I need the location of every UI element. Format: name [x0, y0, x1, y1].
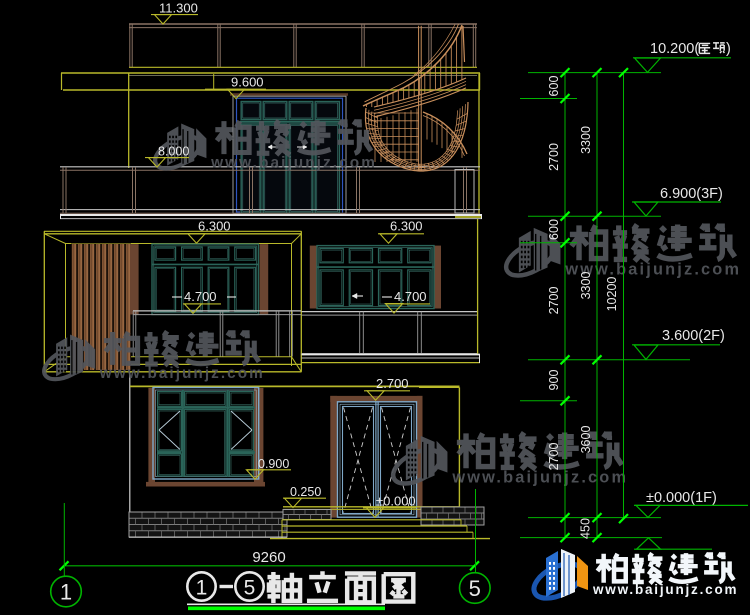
svg-text:5: 5 [244, 577, 256, 600]
svg-text:1: 1 [196, 577, 208, 600]
svg-text:600: 600 [547, 76, 561, 97]
svg-text:3300: 3300 [579, 272, 593, 300]
svg-text:9.600: 9.600 [231, 75, 264, 90]
svg-text:2700: 2700 [547, 443, 561, 471]
svg-text:±0.000: ±0.000 [376, 494, 416, 509]
svg-text:0.900: 0.900 [258, 457, 289, 471]
svg-text:www.baijunjz.com: www.baijunjz.com [451, 468, 628, 486]
svg-text:0.250: 0.250 [290, 485, 321, 499]
svg-text:6.300: 6.300 [198, 219, 231, 234]
svg-text:www.baijunjz.com: www.baijunjz.com [99, 365, 265, 382]
svg-text:6.900(3F): 6.900(3F) [660, 186, 723, 202]
svg-text:5: 5 [469, 576, 481, 601]
svg-text:8.000: 8.000 [158, 145, 189, 159]
svg-text:600: 600 [547, 219, 561, 240]
svg-text:4.700: 4.700 [184, 289, 217, 304]
svg-text:www.baijunjz.com: www.baijunjz.com [210, 154, 377, 171]
svg-text:www.baijunjz.com: www.baijunjz.com [592, 582, 738, 597]
svg-text:3600: 3600 [579, 426, 593, 454]
svg-text:900: 900 [547, 370, 561, 391]
svg-text:2.700: 2.700 [376, 376, 409, 391]
svg-text:11.300: 11.300 [159, 1, 198, 16]
svg-text:1: 1 [60, 580, 72, 605]
svg-text:3.600(2F): 3.600(2F) [662, 328, 725, 344]
svg-text:450: 450 [579, 518, 593, 539]
svg-text:10200: 10200 [605, 277, 619, 312]
svg-text:6.300: 6.300 [390, 219, 423, 234]
svg-text:10.200(: 10.200( [650, 41, 699, 57]
svg-text:): ) [726, 41, 731, 57]
svg-text:2700: 2700 [547, 143, 561, 171]
svg-text:2700: 2700 [547, 287, 561, 315]
svg-text:3300: 3300 [579, 126, 593, 154]
svg-text:4.700: 4.700 [394, 289, 427, 304]
svg-text:±0.000(1F): ±0.000(1F) [646, 490, 717, 506]
svg-text:9260: 9260 [252, 549, 285, 566]
